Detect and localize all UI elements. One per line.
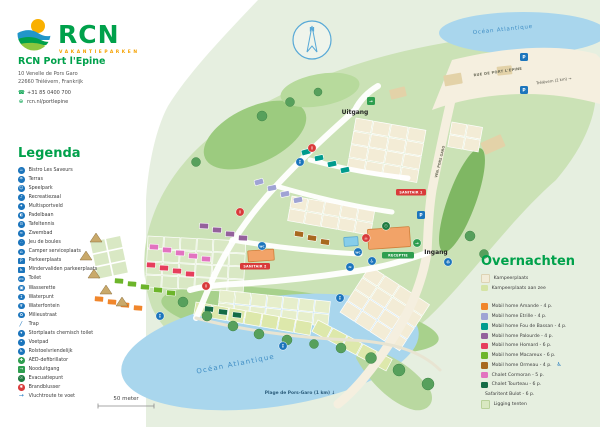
mobile-home-cormoran xyxy=(162,247,171,253)
legend-item-label: Brandblusser xyxy=(29,385,61,390)
park-address-line2: 22660 Trélévern, Frankrijk xyxy=(18,79,168,87)
legend-item-label: Speelpark xyxy=(29,186,53,191)
legend-item: ≈Zwembad xyxy=(18,230,143,237)
accommodation-item: Safaritent Bulot - 6 p. xyxy=(481,391,599,398)
camping-plot xyxy=(400,167,419,182)
accommodation-swatch xyxy=(481,333,488,340)
tree-icon xyxy=(314,88,322,96)
camping-plot xyxy=(294,320,312,336)
accommodations-panel: Overnachten KampeerplaatsKampeerplaats a… xyxy=(481,254,599,411)
mobile-home-ormeau xyxy=(294,231,304,238)
camping-plot xyxy=(367,148,386,163)
legend-panel: Legenda ☕Bistro Les Saveurs☂Terras☺Speel… xyxy=(18,146,143,402)
mobile-home-tourteau xyxy=(232,312,242,318)
camping-plot xyxy=(369,134,388,149)
accommodation-item: Chalet Cormoran - 5 p. xyxy=(481,372,599,379)
legend-item: ▣Wasserette xyxy=(18,285,143,292)
legend-item: ☉Evacuatiepunt xyxy=(18,375,143,382)
accommodation-item: Mobil home Etrille - 4 p. xyxy=(481,313,599,320)
camping-plot xyxy=(372,121,391,136)
legend-item-label: Jeu de boules xyxy=(29,240,61,245)
mobile-home-cormoran xyxy=(201,256,210,262)
legend-item-label: Voetpad xyxy=(29,340,49,345)
toilet-icon: WC xyxy=(18,276,25,283)
legend-item-label: Zwembad xyxy=(29,231,53,236)
legend-item-label: Evacuatiepunt xyxy=(29,376,64,381)
camping-plot xyxy=(466,125,483,139)
accommodation-label: Mobil home Macareux - 6 p. xyxy=(492,353,556,358)
petanque-icon: ∴ xyxy=(18,239,25,246)
camping-plot xyxy=(349,145,368,160)
legend-items: ☕Bistro Les Saveurs☂Terras☺Speelpark♪Rec… xyxy=(18,167,143,400)
legend-item: ♻Milieustraat xyxy=(18,312,143,319)
recycling-icon-glyph: ♻ xyxy=(446,260,450,266)
compass-rose: N xyxy=(293,21,331,59)
tree-icon xyxy=(465,231,475,241)
legend-item-label: Parkeerplaats xyxy=(29,258,62,263)
accommodation-swatch xyxy=(481,313,488,320)
camping-plot xyxy=(261,314,279,330)
camping-plot xyxy=(463,138,480,152)
legend-item: ✚AED-defibrillator xyxy=(18,357,143,364)
legend-item-label: Waterpunt xyxy=(29,295,54,300)
legend-heading: Legenda xyxy=(18,146,143,161)
accommodation-label: Mobil home Palourde - 4 p. xyxy=(492,334,553,339)
legend-item-label: Recreatiezaal xyxy=(29,195,61,200)
accommodation-swatch xyxy=(481,362,488,369)
disabled-parking-icon: ♿ xyxy=(18,267,25,274)
mobile-home-palourde xyxy=(199,223,208,229)
accommodation-label: Kampeerplaats aan zee xyxy=(492,286,546,291)
building xyxy=(344,237,359,247)
accommodation-item: Mobil home Fou de Bassan - 4 p. xyxy=(481,323,599,330)
tree-icon xyxy=(228,321,238,331)
accommodation-item: Mobil home Macareux - 6 p. xyxy=(481,352,599,359)
accommodation-swatch xyxy=(481,372,488,379)
tree-icon xyxy=(422,378,434,390)
globe-icon: ⊕ xyxy=(18,99,24,105)
escape-route-icon: → xyxy=(18,393,25,400)
park-address-line1: 10 Venelle de Pors Garo xyxy=(18,71,168,79)
accommodation-label: Mobil home Homard - 6 p. xyxy=(492,343,552,348)
mobile-home-cormoran xyxy=(175,250,184,256)
camping-plot xyxy=(304,212,322,227)
camping-plot xyxy=(197,239,213,252)
pool-icon-glyph: ≈ xyxy=(348,266,352,271)
table-tennis-icon: ⊙ xyxy=(18,221,25,228)
camping-plot xyxy=(351,131,370,146)
mobile-home-macareux xyxy=(166,290,175,296)
tree-icon xyxy=(178,297,188,307)
camping-plot xyxy=(147,249,163,262)
legend-item: ⌂Camper serviceplaats xyxy=(18,248,143,255)
accommodation-swatch xyxy=(481,274,490,283)
legend-item-label: Trap xyxy=(29,322,39,327)
mobile-home-tourteau xyxy=(218,309,228,315)
accommodation-label: Ligging tenten xyxy=(494,402,527,407)
multisport-icon: ✦ xyxy=(18,203,25,210)
accommodation-item: Kampeerplaats xyxy=(481,275,599,282)
mobile-home-homard xyxy=(172,268,181,274)
exit-label: Uitgang xyxy=(342,109,369,116)
legend-item: ▾Stortplaats chemisch toilet xyxy=(18,330,143,337)
emergency-exit-icon: → xyxy=(18,366,25,373)
camping-plot xyxy=(450,122,467,136)
park-phone: +31 85 0400 700 xyxy=(27,90,71,96)
chemical-toilet-icon: ▾ xyxy=(18,330,25,337)
accommodation-label: Kampeerplaats xyxy=(494,276,529,281)
camper-service-icon: ⌂ xyxy=(18,249,25,256)
water-tap-icon-glyph: ↧ xyxy=(158,315,162,320)
accommodation-item: Mobil home Homard - 6 p. xyxy=(481,343,599,350)
accommodation-label: Safaritent Bulot - 6 p. xyxy=(485,392,534,397)
fire-extinguisher-icon: ✱ xyxy=(18,384,25,391)
legend-item: ♪Recreatiezaal xyxy=(18,194,143,201)
accommodation-swatch xyxy=(481,303,488,310)
accommodation-item: Ligging tenten xyxy=(481,401,599,408)
tree-icon xyxy=(254,329,264,339)
tree-icon xyxy=(393,364,405,376)
ocean-north xyxy=(439,12,600,54)
mobile-home-macareux xyxy=(153,287,162,293)
facility-badge-label: SANITAIR 1 xyxy=(399,191,423,195)
camping-plot xyxy=(244,311,262,327)
evacuation-icon: ☉ xyxy=(18,375,25,382)
park-website-link[interactable]: rcn.nl/portlepine xyxy=(27,99,68,105)
legend-item-label: Terras xyxy=(29,177,43,182)
legend-item-label: Camper serviceplaats xyxy=(29,249,81,254)
legend-item-label: Toilet xyxy=(29,276,42,281)
camping-plot xyxy=(298,298,314,312)
accommodation-swatch xyxy=(481,400,490,409)
camping-plot xyxy=(407,127,426,142)
water-tap-icon-glyph: ↧ xyxy=(281,345,285,350)
legend-item-label: Multisportveld xyxy=(29,204,63,209)
legend-item-label: Nooduitgang xyxy=(29,367,60,372)
padel-icon: ◐ xyxy=(18,212,25,219)
legend-item: WCToilet xyxy=(18,276,143,283)
pool-icon: ≈ xyxy=(18,230,25,237)
recreation-hall-icon: ♪ xyxy=(18,194,25,201)
footpath-icon: • xyxy=(18,339,25,346)
evacuation-icon-glyph: ☉ xyxy=(384,224,388,230)
tree-icon xyxy=(366,353,377,364)
accommodation-label: Mobil home Etrille - 4 p. xyxy=(492,314,547,319)
tree-icon xyxy=(336,343,346,353)
mobile-home-homard xyxy=(146,262,155,268)
legend-item: ♿Mindervaliden parkeerplaats xyxy=(18,267,143,274)
wheelchair-icon: ♿ xyxy=(557,362,562,368)
accommodation-item: Kampeerplaats aan zee xyxy=(481,285,599,292)
stairs-icon: ╱ xyxy=(18,321,25,328)
accommodation-label: Mobil home Fou de Bassan - 4 p. xyxy=(492,324,567,329)
park-website-row: ⊕ rcn.nl/portlepine xyxy=(18,99,168,105)
camping-plot xyxy=(235,292,251,306)
wheelchair-icon-glyph: ♿ xyxy=(370,259,374,265)
terrace-icon: ☂ xyxy=(18,176,25,183)
accommodation-label: Chalet Tourteau - 6 p. xyxy=(492,382,542,387)
accommodation-swatch xyxy=(481,285,488,292)
camping-plot xyxy=(288,209,306,224)
accommodation-swatch xyxy=(481,382,488,389)
playground-icon: ☺ xyxy=(18,185,25,192)
accommodation-swatch xyxy=(481,352,488,359)
accommodation-item: Chalet Tourteau - 6 p. xyxy=(481,382,599,389)
parking-icon: P xyxy=(18,258,25,265)
camping-plot xyxy=(338,218,356,233)
legend-item-label: Milieustraat xyxy=(29,313,57,318)
legend-item-label: AED-defibrillator xyxy=(29,358,69,363)
accommodation-label: Mobil home Ormeau - 4 p. xyxy=(492,363,552,368)
legend-item-label: Rolstoelvriendelijk xyxy=(29,349,73,354)
camping-plot xyxy=(282,297,298,311)
accommodation-label: Mobil home Amande - 4 p. xyxy=(492,304,553,309)
camping-plot xyxy=(448,135,465,149)
camping-plot xyxy=(162,276,178,289)
mobile-home-cormoran xyxy=(149,244,158,250)
camping-plot xyxy=(354,118,373,133)
legend-item-label: Stortplaats chemisch toilet xyxy=(29,331,94,336)
accommodation-swatch xyxy=(481,343,488,350)
legend-item: →Vluchtroute te voet xyxy=(18,393,143,400)
fountain-icon: ♆ xyxy=(18,303,25,310)
mobile-home-ormeau xyxy=(307,235,317,242)
legend-item-label: Wasserette xyxy=(29,286,56,291)
legend-item-label: Tafeltennis xyxy=(29,222,55,227)
mobile-home-palourde xyxy=(238,235,247,241)
accommodations-heading: Overnachten xyxy=(481,254,599,269)
park-name: RCN Port l'Epine xyxy=(18,56,168,67)
camping-plot xyxy=(219,290,235,304)
legend-item-label: Waterfontein xyxy=(29,304,60,309)
aed-icon: ✚ xyxy=(18,357,25,364)
mobile-home-ormeau xyxy=(320,239,330,246)
accommodation-swatch xyxy=(481,323,488,330)
recycling-icon: ♻ xyxy=(18,312,25,319)
rcn-tagline: VAKANTIEPARKEN xyxy=(59,49,140,55)
legend-item: ╱Trap xyxy=(18,321,143,328)
facility-badge-label: SANITAIR 2 xyxy=(243,265,267,269)
rcn-logo-mark-icon xyxy=(16,18,54,53)
campsite-map-page: { "brand": { "logo_text": "RCN", "taglin… xyxy=(0,0,600,427)
tree-icon xyxy=(192,158,201,167)
legend-item: ♆Waterfontein xyxy=(18,303,143,310)
camping-plot xyxy=(402,154,421,169)
toilet-icon-glyph: WC xyxy=(355,251,360,255)
restaurant-icon: ☕ xyxy=(18,167,25,174)
camping-plot xyxy=(405,141,424,156)
legend-item: ✱Brandblusser xyxy=(18,384,143,391)
water-tap-icon: ↧ xyxy=(18,294,25,301)
legend-item: ☕Bistro Les Saveurs xyxy=(18,167,143,174)
tree-icon xyxy=(310,340,319,349)
camping-plot xyxy=(389,124,408,139)
legend-item: ☺Speelpark xyxy=(18,185,143,192)
entrance-icon-glyph: → xyxy=(415,242,419,247)
accommodation-items: KampeerplaatsKampeerplaats aan zeeMobil … xyxy=(481,275,599,408)
camping-plot xyxy=(180,238,196,251)
legend-item-label: Padelbaan xyxy=(29,213,54,218)
accommodation-label: Chalet Cormoran - 5 p. xyxy=(492,373,544,378)
legend-item-label: Mindervaliden parkeerplaats xyxy=(29,267,98,272)
camping-plot xyxy=(266,295,282,309)
park-info: RCN Port l'Epine 10 Venelle de Pors Garo… xyxy=(18,56,168,105)
camping-plot xyxy=(387,138,406,153)
legend-item-label: Bistro Les Saveurs xyxy=(29,168,73,173)
legend-item-label: Vluchtroute te voet xyxy=(29,394,75,399)
legend-item: →Nooduitgang xyxy=(18,366,143,373)
camping-plot xyxy=(307,199,325,214)
restaurant-icon-glyph: ☕ xyxy=(364,236,368,242)
legend-item: •Voetpad xyxy=(18,339,143,346)
park-phone-row: ☎ +31 85 0400 700 xyxy=(18,90,168,96)
mobile-home-palourde xyxy=(225,231,234,237)
rcn-logo: RCN VAKANTIEPARKEN xyxy=(14,12,194,58)
tree-icon xyxy=(202,311,212,321)
exit-icon-glyph: → xyxy=(369,100,373,105)
legend-item: ↧Waterpunt xyxy=(18,294,143,301)
wheelchair-icon: ♿ xyxy=(18,348,25,355)
camping-plot xyxy=(195,265,211,278)
water-tap-icon-glyph: ↧ xyxy=(338,297,342,302)
camping-plot xyxy=(277,317,295,333)
accommodation-item: Mobil home Palourde - 4 p. xyxy=(481,333,599,340)
mobile-home-homard xyxy=(159,265,168,271)
tree-icon xyxy=(286,98,295,107)
camping-plot xyxy=(314,300,330,314)
camping-plot xyxy=(385,151,404,166)
rcn-logo-text: RCN xyxy=(58,20,120,49)
mobile-home-cormoran xyxy=(188,253,197,259)
toilet-icon-glyph: WC xyxy=(259,245,264,249)
mobile-home-palourde xyxy=(212,227,221,233)
legend-item: ⊙Tafeltennis xyxy=(18,221,143,228)
accommodation-item: Mobil home Amande - 4 p. xyxy=(481,303,599,310)
building xyxy=(367,227,410,250)
camping-plot xyxy=(321,215,339,230)
building xyxy=(248,249,275,262)
water-tap-icon-glyph: ↧ xyxy=(298,161,302,166)
legend-item: PParkeerplaats xyxy=(18,257,143,264)
legend-item: ♿Rolstoelvriendelijk xyxy=(18,348,143,355)
beach-label: Plage de Pors-Garo (1 km) ↓ xyxy=(265,390,335,396)
camping-plot xyxy=(251,293,267,307)
tree-icon xyxy=(257,111,267,121)
laundry-icon: ▣ xyxy=(18,285,25,292)
phone-icon: ☎ xyxy=(18,90,24,96)
entrance-label: Ingang xyxy=(424,249,447,256)
facility-badge-label: RECEPTIE xyxy=(388,254,408,258)
legend-item: ✦Multisportveld xyxy=(18,203,143,210)
legend-item: ◐Padelbaan xyxy=(18,212,143,219)
legend-item: ☂Terras xyxy=(18,176,143,183)
accommodation-item: Mobil home Ormeau - 4 p.♿ xyxy=(481,362,599,369)
mobile-home-homard xyxy=(185,271,194,277)
legend-item: ∴Jeu de boules xyxy=(18,239,143,246)
